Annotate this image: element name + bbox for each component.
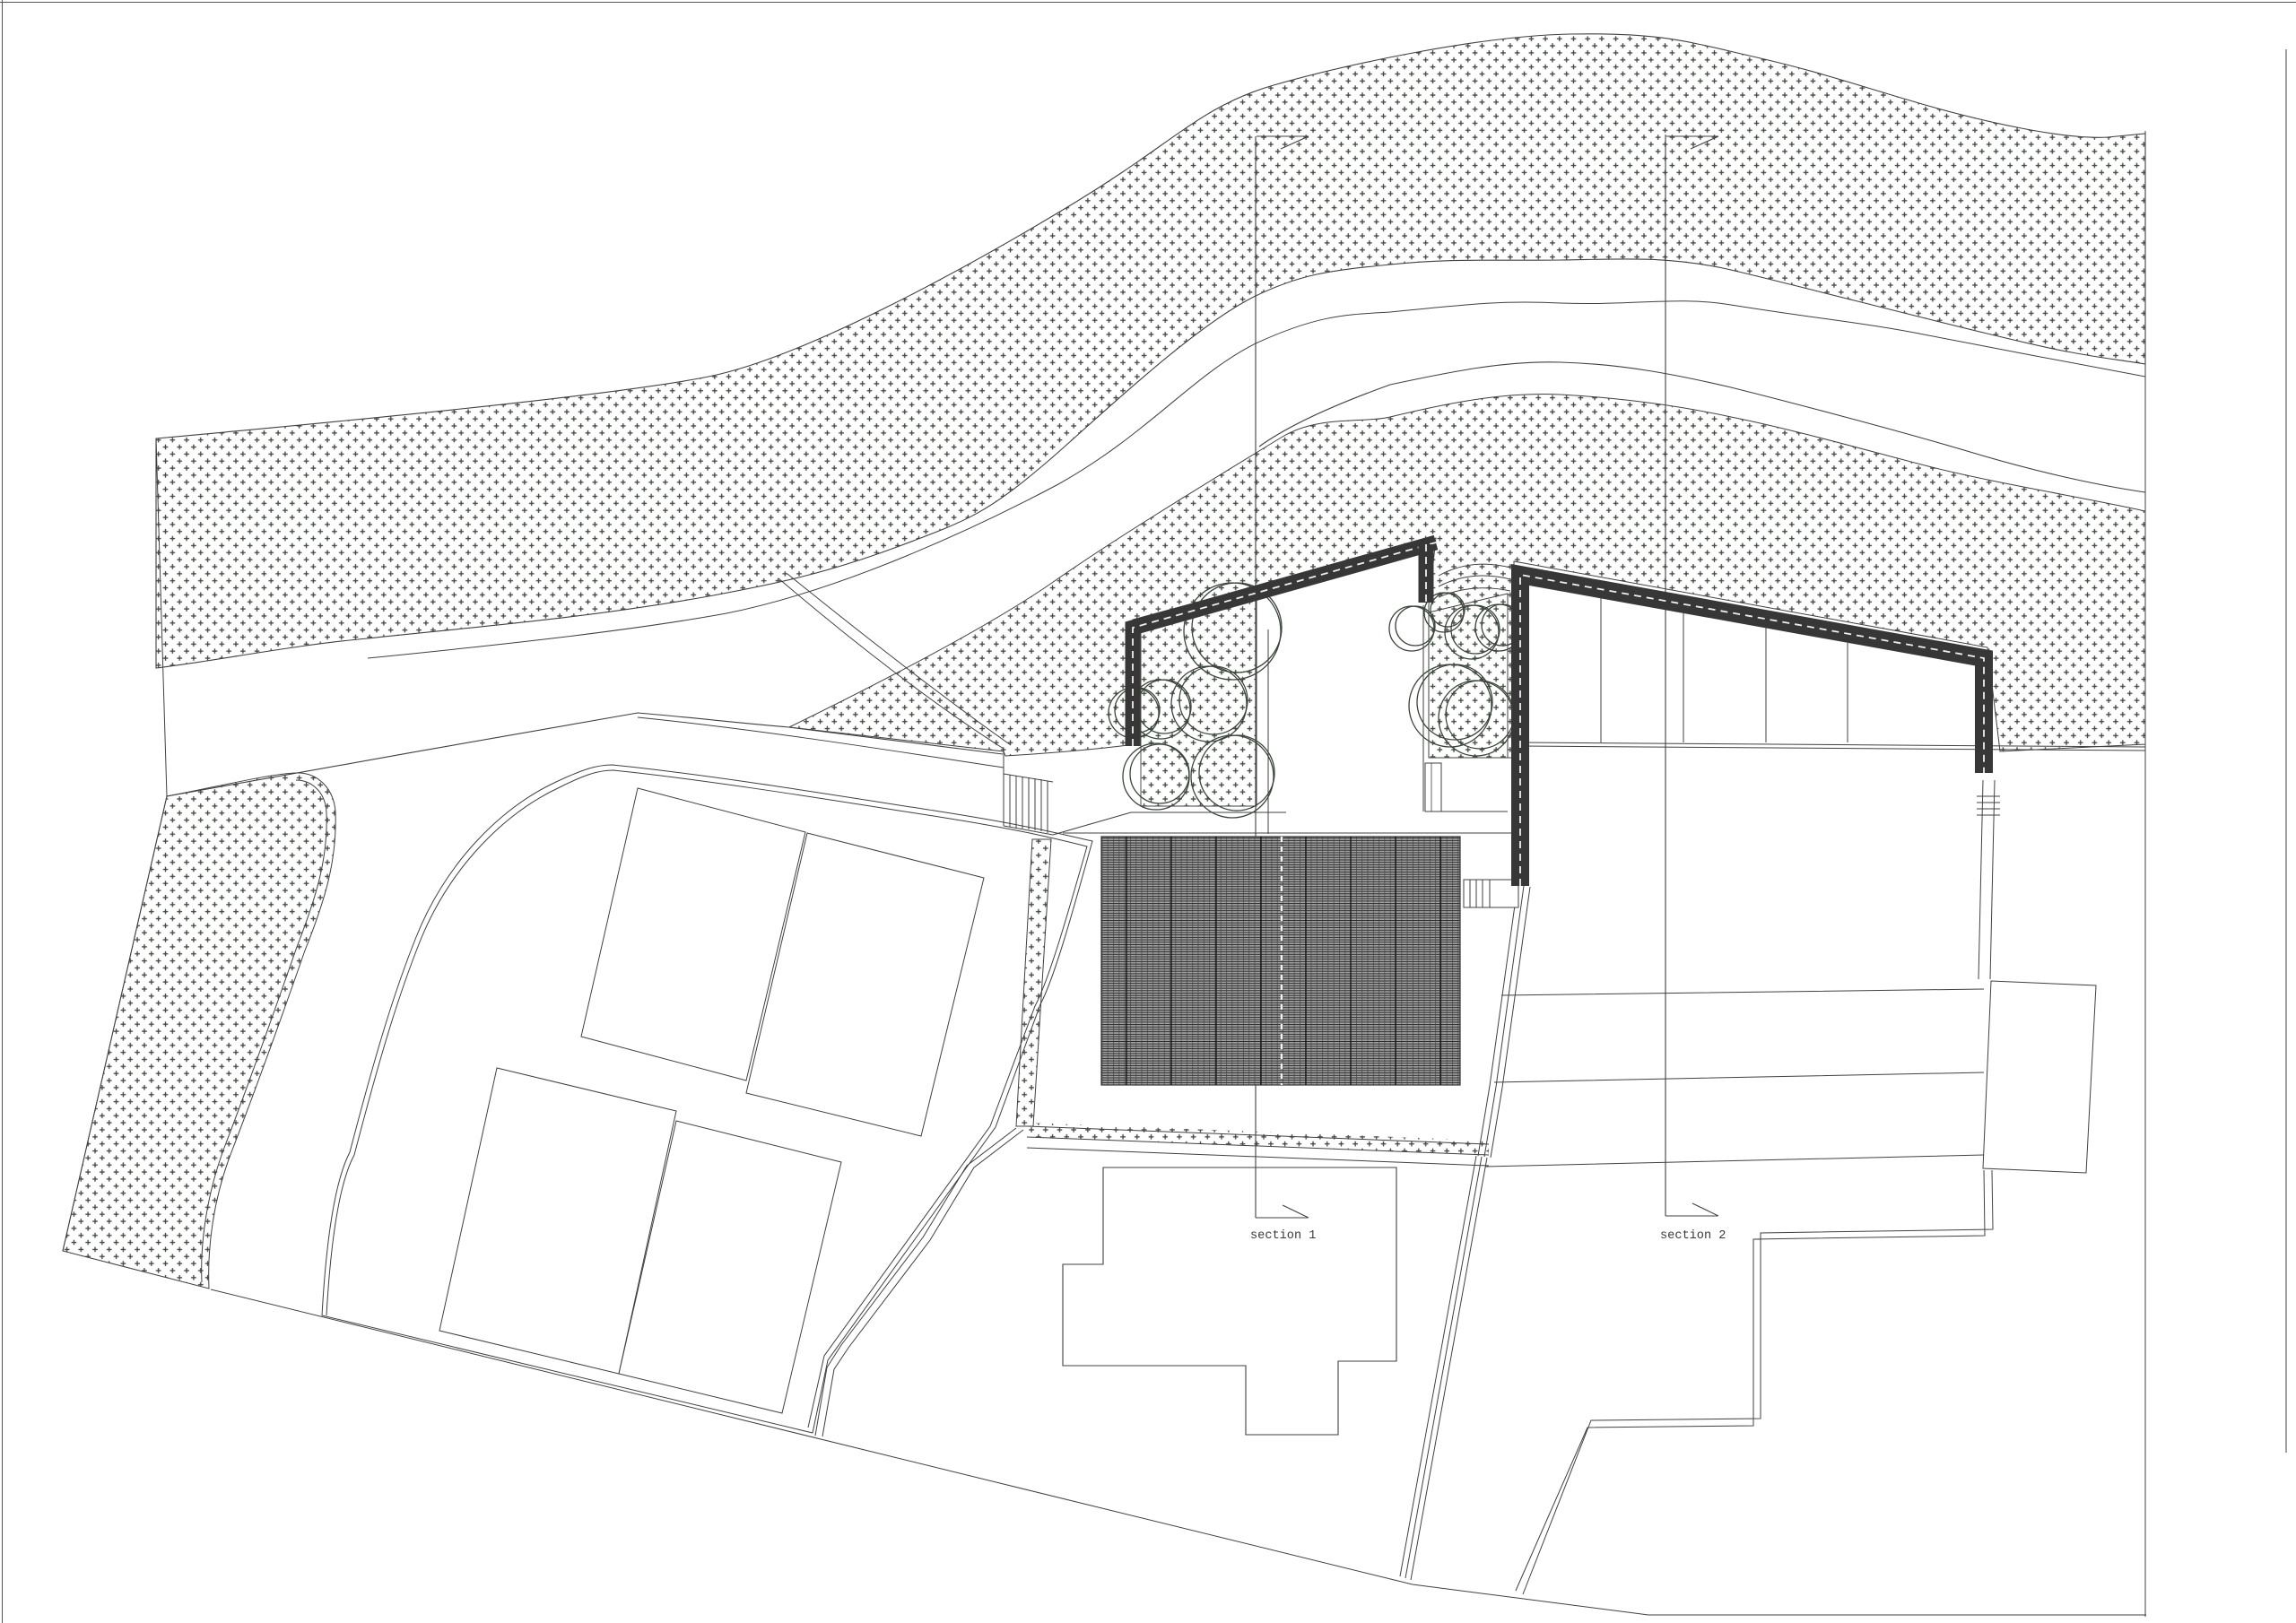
svg-text:section 1: section 1 <box>1250 1229 1316 1243</box>
svg-text:section 2: section 2 <box>1660 1229 1726 1243</box>
